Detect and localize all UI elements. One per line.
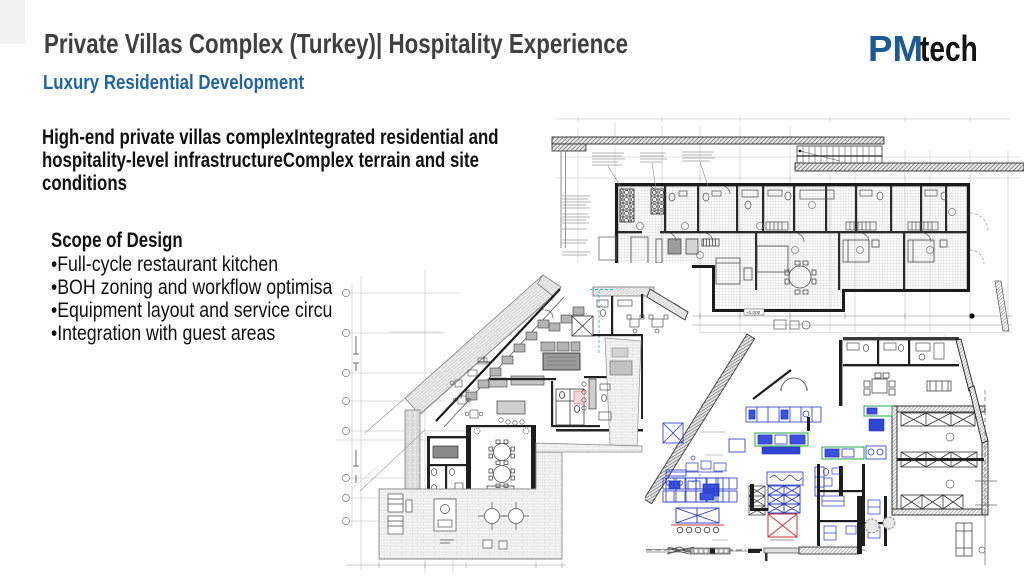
svg-text:+0.000: +0.000 <box>746 310 761 315</box>
